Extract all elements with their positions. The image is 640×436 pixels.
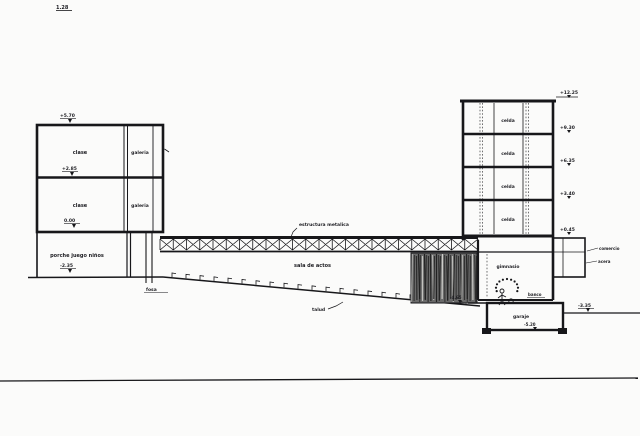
- pit-label: fosa: [146, 287, 157, 293]
- shop-leader: [587, 248, 598, 251]
- left-building-facade-tick: [165, 149, 170, 152]
- structure-note: estructura metalica: [299, 222, 349, 228]
- room-label-clase-upper: clase: [73, 150, 88, 156]
- pit-callout: fosa: [144, 287, 168, 293]
- level-arrow-icon: [567, 130, 571, 133]
- level-marker-tower-2: +3.40: [560, 191, 575, 199]
- level-text: 0.00: [64, 218, 75, 224]
- level-marker-floor1-left: +2.85: [62, 166, 78, 176]
- room-label-galeria-upper: galeria: [131, 150, 149, 156]
- trajectory-dot: [516, 283, 518, 285]
- trajectory-dot: [510, 279, 512, 281]
- level-marker-garage: -5.20: [524, 322, 537, 330]
- left-building: clase galeria clase galeria +5.70 +2.85 …: [37, 113, 169, 232]
- tower-floor-label-1: celda: [501, 217, 515, 223]
- garage: garaje -5.20: [482, 303, 567, 334]
- truss-x-bracing: [160, 239, 478, 250]
- garage-footing-right: [558, 328, 567, 334]
- tower-floor-label-4: celda: [501, 118, 515, 124]
- level-marker-porch: -2.35: [60, 263, 76, 273]
- earth-fill: [411, 253, 477, 303]
- garage-label: garaje: [513, 314, 529, 320]
- room-label-galeria-lower: galeria: [131, 203, 149, 209]
- level-text: +5.70: [60, 113, 75, 119]
- level-arrow-icon: [567, 232, 571, 235]
- level-arrow-icon: [70, 172, 74, 176]
- level-text: -2.35: [60, 263, 73, 269]
- trajectory-dot: [514, 280, 516, 282]
- trajectory-dot: [495, 287, 497, 289]
- level-arrow-icon: [72, 224, 76, 228]
- earth-hatch-stroke: [420, 255, 421, 302]
- level-text: -5.20: [524, 322, 536, 327]
- hall-label: sala de actos: [294, 263, 331, 269]
- level-arrow-icon: [567, 163, 571, 166]
- shop-label: comercio: [599, 246, 620, 251]
- slope-label: talud: [312, 307, 325, 313]
- annex-outline: [553, 238, 585, 277]
- gym-label: gimnasio: [496, 264, 519, 270]
- level-marker-street: -3.35: [578, 303, 594, 312]
- level-arrow-icon: [68, 269, 72, 273]
- level-marker-roof-left: +5.70: [60, 113, 76, 123]
- level-marker-base-left: 0.00: [64, 218, 80, 228]
- trajectory-dot: [498, 280, 500, 282]
- tower-floor-label-2: celda: [501, 184, 515, 190]
- figure-head: [500, 289, 504, 293]
- level-text: +2.85: [62, 166, 77, 172]
- structure-leader: [291, 228, 297, 237]
- slope-leader: [328, 302, 343, 309]
- shop-callout: comercio: [587, 246, 620, 251]
- tower-floor-label-3: celda: [501, 151, 515, 157]
- sidewalk-leader: [586, 261, 597, 263]
- site-baseline: [0, 378, 638, 381]
- level-arrow-icon: [567, 196, 571, 199]
- level-marker-tower-3: +6.35: [560, 158, 575, 166]
- level-arrow-icon: [68, 119, 72, 123]
- structure-callout: estructura metalica: [291, 222, 349, 237]
- architectural-section-sheet: 1.28 clase galeria clase galeria +5.70 +…: [0, 0, 640, 436]
- ground: -3.35: [0, 303, 640, 381]
- earth-hatch-stroke: [434, 256, 435, 299]
- earth-hatch-stroke: [462, 255, 463, 301]
- section-drawing: 1.28 clase galeria clase galeria +5.70 +…: [0, 0, 640, 436]
- room-label-clase-lower: clase: [73, 203, 88, 209]
- level-text: -4.65: [450, 295, 462, 300]
- bench-callout: banco: [527, 292, 545, 298]
- sidewalk-label: acera: [598, 259, 611, 264]
- earth-hatch-stroke: [476, 256, 477, 302]
- trajectory-dot: [506, 278, 508, 280]
- trajectory-dot: [517, 287, 519, 289]
- bench-label: banco: [528, 292, 542, 297]
- trajectory-dot: [496, 290, 498, 292]
- garage-footing-left: [482, 328, 491, 334]
- level-marker-tower-4: +9.30: [560, 125, 575, 133]
- trajectory-dot: [516, 290, 518, 292]
- porch-ground-line: [28, 277, 163, 278]
- slope-callout: talud: [312, 302, 343, 313]
- trajectory-dot: [496, 283, 498, 285]
- sidewalk-callout: acera: [586, 259, 611, 264]
- trajectory-dot: [502, 279, 504, 281]
- annex: comercio acera: [553, 238, 620, 277]
- level-marker-tower-1: +0.45: [560, 227, 575, 235]
- ball-trajectory-dots: [495, 278, 519, 292]
- porch-label: porche juego niños: [50, 253, 104, 259]
- level-arrow-icon: [567, 95, 571, 98]
- porch: porche juego niños -2.35 fosa: [28, 232, 168, 293]
- earth-hatch-stroke: [448, 254, 449, 300]
- sheet-mark: 1.28: [56, 5, 72, 11]
